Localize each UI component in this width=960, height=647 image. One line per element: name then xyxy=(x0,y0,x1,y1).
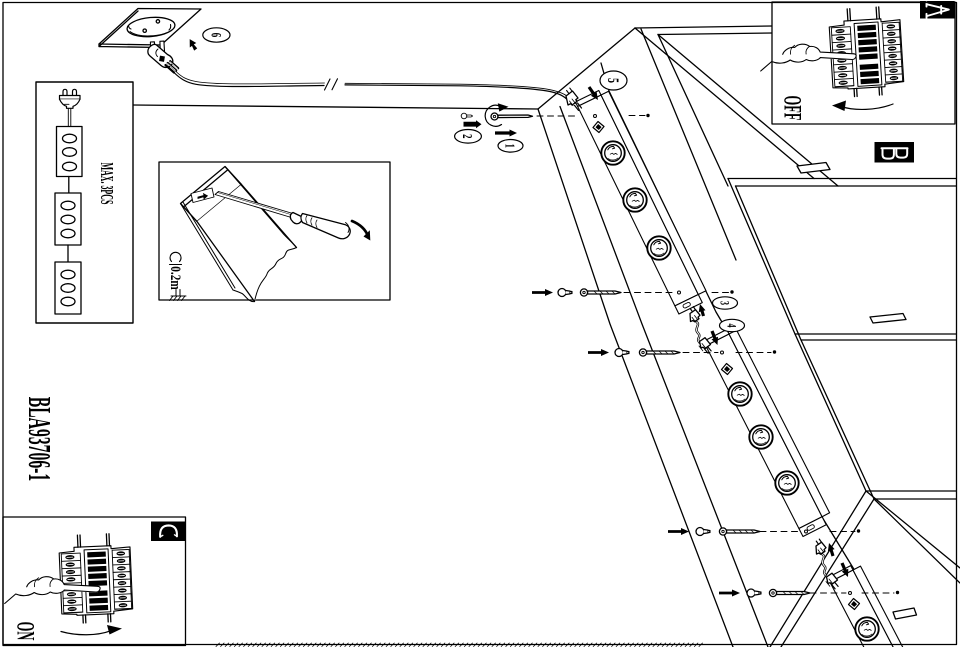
svg-text:4: 4 xyxy=(724,323,738,327)
svg-text:6: 6 xyxy=(208,33,225,38)
svg-text:2: 2 xyxy=(460,134,476,138)
svg-text:BLA93706-1: BLA93706-1 xyxy=(22,397,56,481)
svg-text:0.2m: 0.2m xyxy=(168,266,185,289)
svg-text:MAX. 3PCS: MAX. 3PCS xyxy=(96,163,115,205)
svg-text:OFF: OFF xyxy=(778,96,806,121)
svg-text:3: 3 xyxy=(717,301,731,305)
svg-text:5: 5 xyxy=(604,78,622,83)
svg-text:ON: ON xyxy=(11,622,39,641)
svg-text:1: 1 xyxy=(502,144,518,148)
